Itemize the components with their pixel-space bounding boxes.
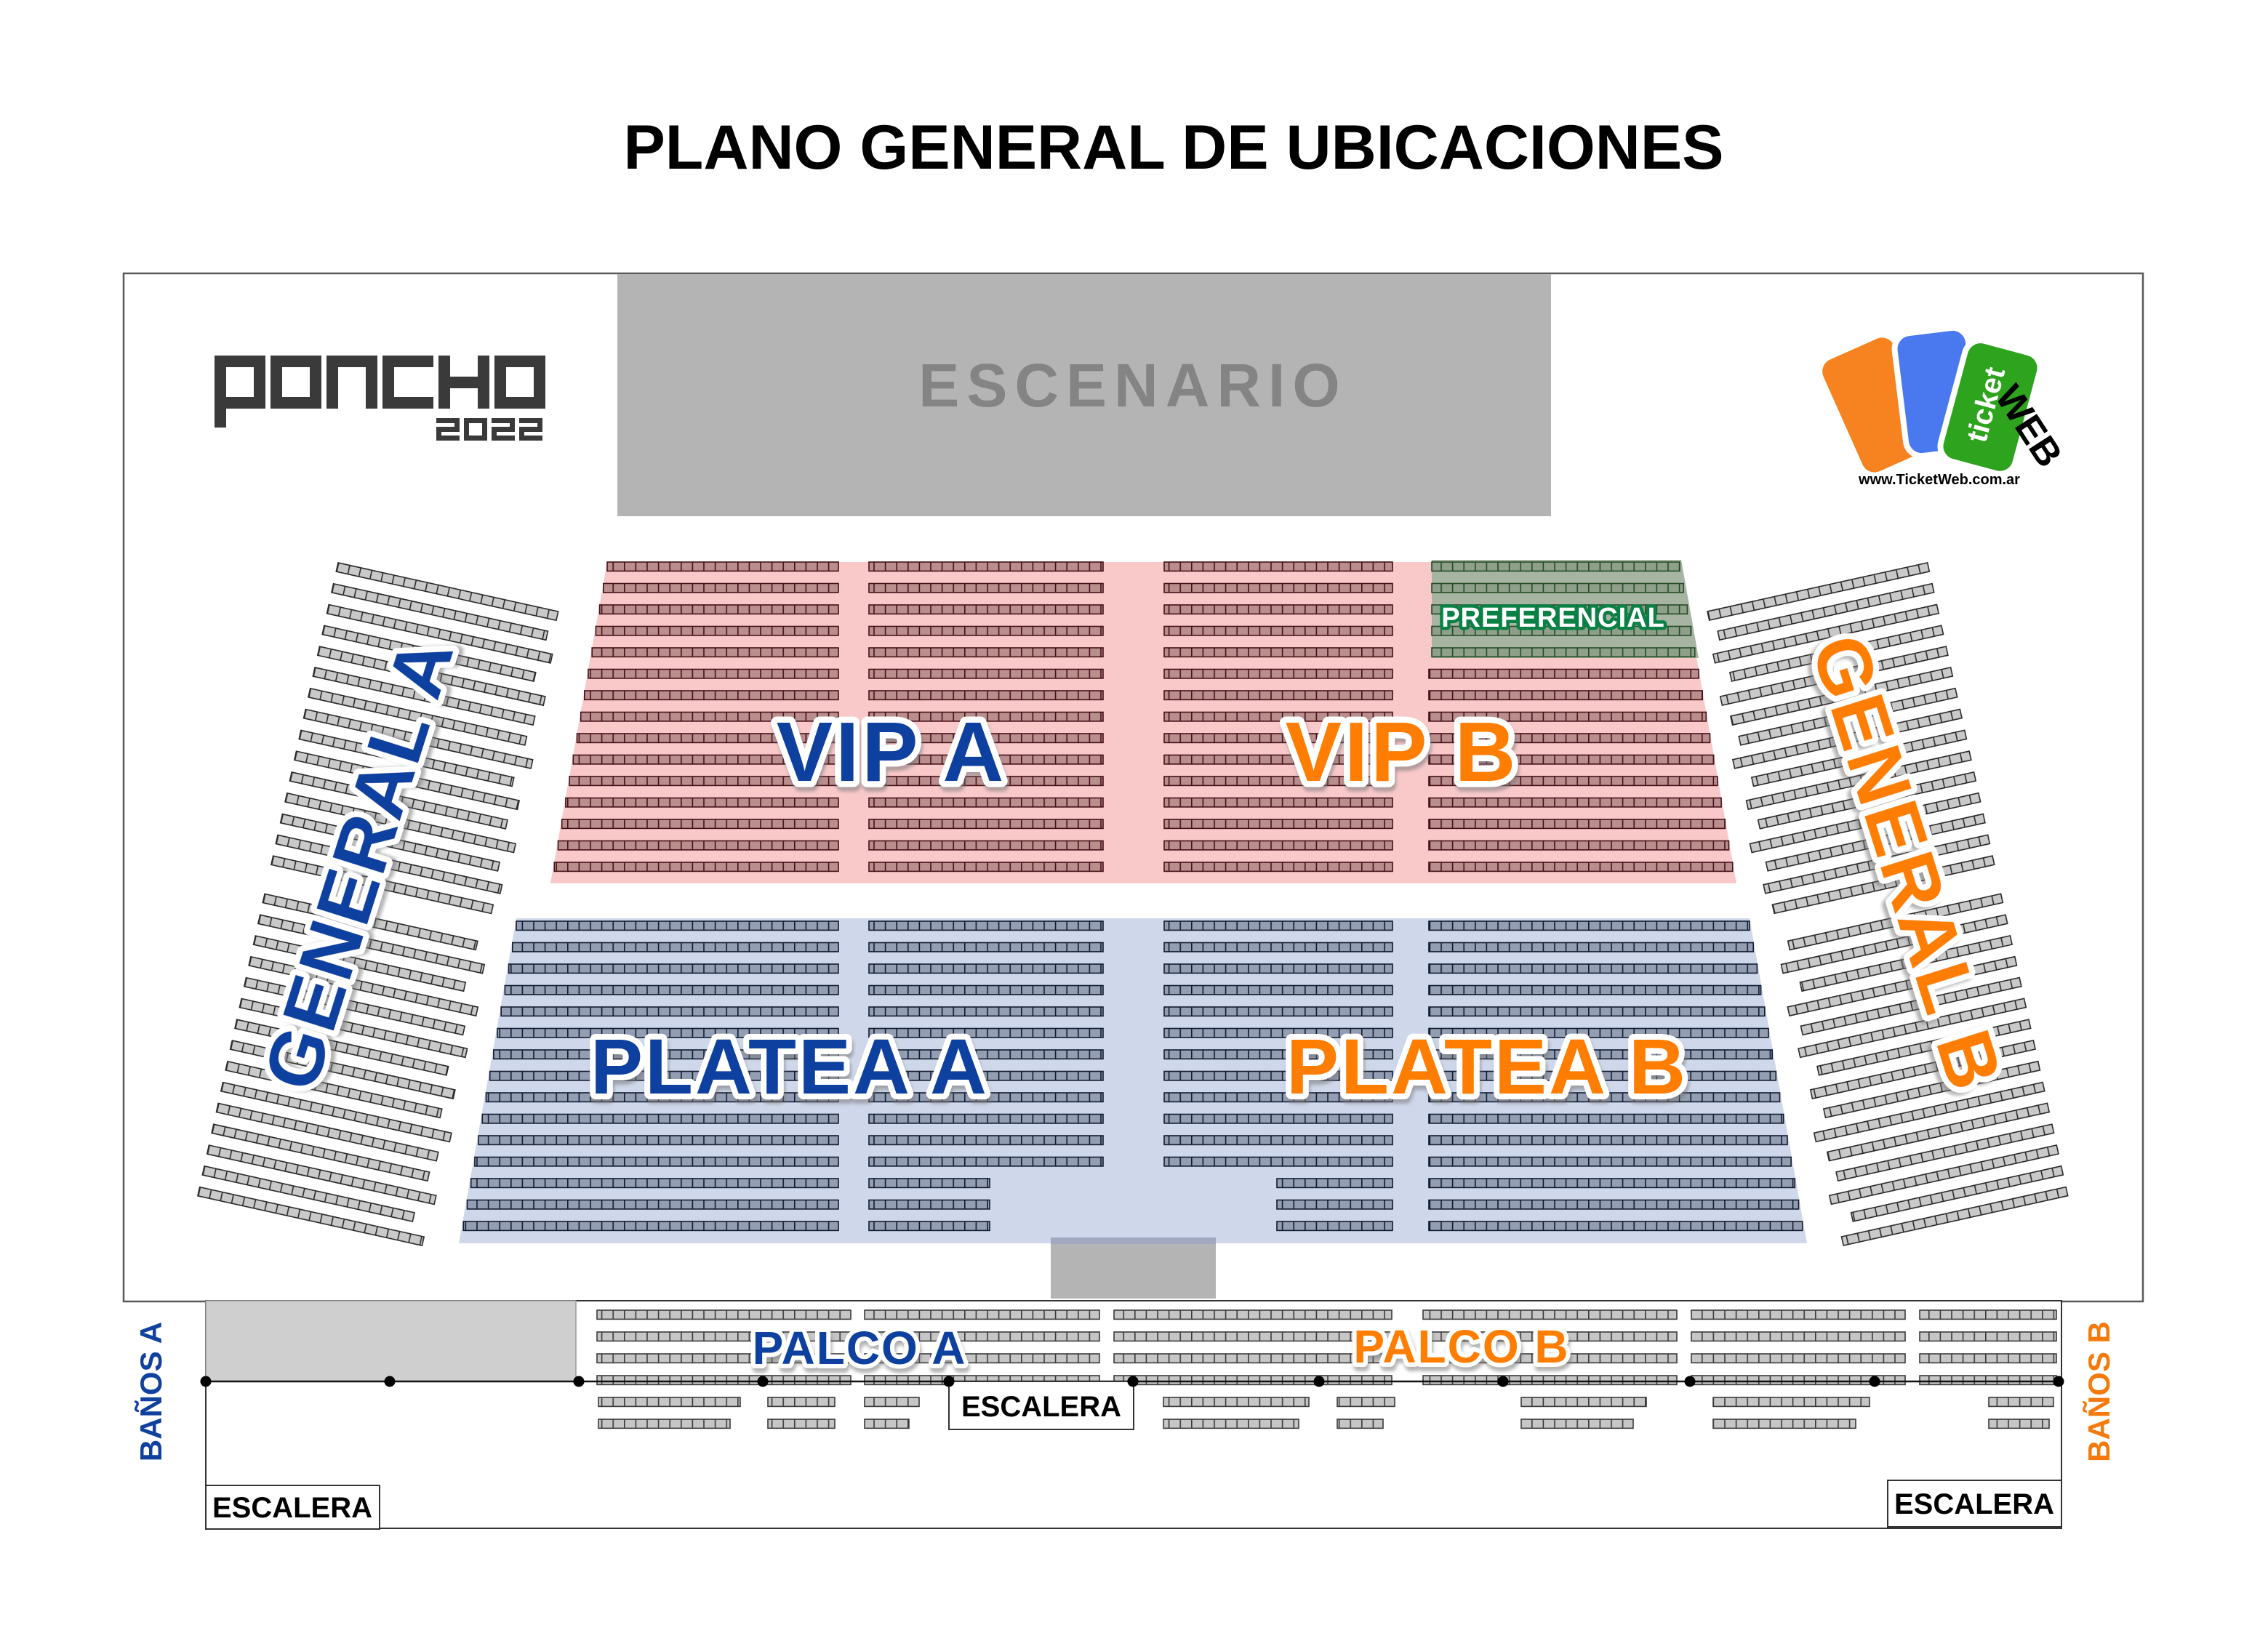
svg-text:PLATEA A: PLATEA A: [590, 1022, 989, 1110]
svg-text:VIP B: VIP B: [1286, 705, 1519, 799]
svg-text:PALCO A: PALCO A: [753, 1322, 967, 1374]
svg-text:PLATEA B: PLATEA B: [1286, 1022, 1688, 1110]
svg-text:ESCALERA: ESCALERA: [212, 1492, 372, 1524]
svg-text:PALCO B: PALCO B: [1353, 1320, 1569, 1373]
svg-text:ESCALERA: ESCALERA: [1894, 1488, 2054, 1520]
svg-text:BAÑOS B: BAÑOS B: [2082, 1321, 2116, 1462]
svg-text:ESCALERA: ESCALERA: [961, 1391, 1121, 1423]
svg-text:VIP A: VIP A: [777, 705, 1007, 799]
svg-text:PREFERENCIAL: PREFERENCIAL: [1441, 603, 1665, 633]
svg-text:ESCENARIO: ESCENARIO: [918, 351, 1347, 420]
svg-text:www.TicketWeb.com.ar: www.TicketWeb.com.ar: [1858, 472, 2020, 488]
svg-text:BAÑOS A: BAÑOS A: [134, 1322, 168, 1461]
svg-text:PLANO GENERAL DE UBICACIONES: PLANO GENERAL DE UBICACIONES: [623, 113, 1723, 182]
